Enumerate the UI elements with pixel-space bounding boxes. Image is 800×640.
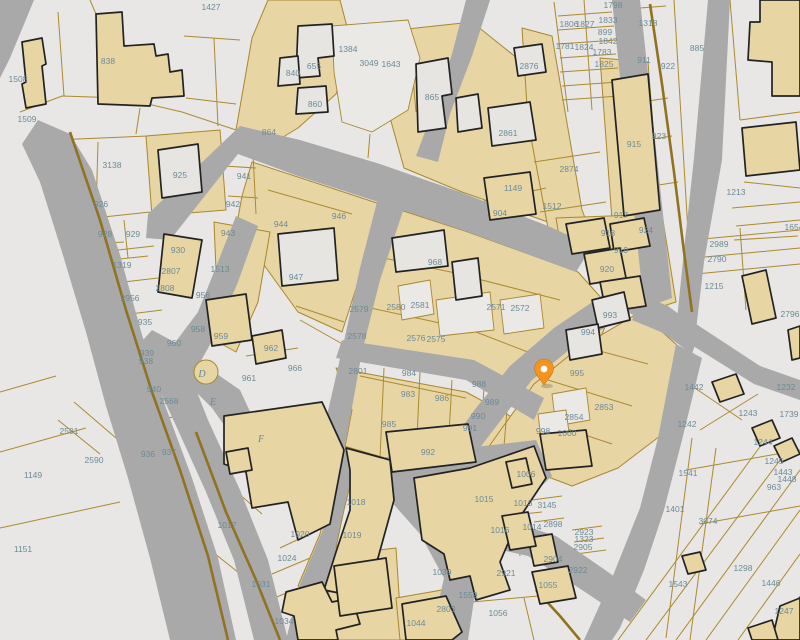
parcel-label: 963: [767, 482, 781, 492]
parcel-label: 2578: [348, 331, 367, 341]
parcel-label: 1827: [576, 19, 595, 29]
parcel-label: 937: [162, 447, 176, 457]
parcel-label: 966: [288, 363, 302, 373]
parcel-label: 956: [196, 290, 210, 300]
parcel-label: 1243: [739, 408, 758, 418]
parcel-label: 2807: [162, 266, 181, 276]
parcel-label: 1298: [734, 563, 753, 573]
parcel-label: 865: [425, 92, 439, 102]
parcel-label: 2854: [565, 412, 584, 422]
parcel-label: 925: [173, 170, 187, 180]
parcel-label: 918: [601, 228, 615, 238]
parcel-label: 962: [264, 343, 278, 353]
parcel-label: 1427: [202, 2, 221, 12]
building: [456, 94, 482, 132]
parcel-label: 2989: [710, 239, 729, 249]
parcel-label: 1446: [762, 578, 781, 588]
parcel-label: 1244: [754, 437, 773, 447]
parcel-label: 1039: [433, 567, 452, 577]
parcel-label: 2921: [497, 568, 516, 578]
parcel-label: 2898: [544, 519, 563, 529]
parcel-label: 1245: [765, 456, 784, 466]
parcel-label: 1509: [18, 114, 37, 124]
parcel-label: 944: [274, 219, 288, 229]
parcel-label: 1513: [211, 264, 230, 274]
parcel-label: 960: [167, 338, 181, 348]
parcel-label: 2808: [156, 283, 175, 293]
parcel-label: 998: [536, 426, 550, 436]
parcel-label: 1014: [523, 522, 542, 532]
parcel-label: 911: [637, 55, 651, 65]
parcel-label: 2861: [499, 128, 518, 138]
parcel-label: 1031: [252, 579, 271, 589]
parcel-label: 946: [332, 211, 346, 221]
parcel-label: 2803: [437, 604, 456, 614]
building: [742, 122, 800, 176]
parcel-label: 959: [214, 331, 228, 341]
parcel-label: 3074: [699, 516, 718, 526]
parcel-label: 2874: [560, 164, 579, 174]
parcel-label: 993: [603, 310, 617, 320]
parcel-label: 2790: [708, 254, 727, 264]
parcel-label: 1559: [459, 590, 478, 600]
parcel-label: 986: [435, 393, 449, 403]
parcel-label: 1232: [777, 382, 796, 392]
parcel-label: 936: [141, 449, 155, 459]
parcel-label: 2571: [487, 302, 506, 312]
parcel-label: 1643: [382, 59, 401, 69]
parcel-label: 920: [600, 264, 614, 274]
parcel-label: 2905: [574, 542, 593, 552]
parcel-label: 1543: [669, 579, 688, 589]
parcel-label: 840: [286, 68, 300, 78]
parcel-label: 1654: [785, 222, 800, 232]
parcel-label: 926: [94, 199, 108, 209]
parcel-label: 2580: [387, 302, 406, 312]
building: [278, 228, 338, 286]
building: [452, 258, 482, 300]
parcel-label: 655: [307, 61, 321, 71]
parcel-label: 3138: [103, 160, 122, 170]
parcel-label: 1151: [14, 544, 33, 554]
parcel-label: 919: [614, 245, 628, 255]
building: [22, 38, 46, 108]
parcel-label: 2576: [407, 333, 426, 343]
parcel-label: 1798: [604, 0, 623, 10]
parcel-label: 1833: [599, 15, 618, 25]
building: [334, 558, 392, 616]
parcel-label: 1055: [539, 580, 558, 590]
parcel-label: 929: [126, 229, 140, 239]
building: [206, 294, 252, 346]
parcel-label: 1016: [491, 525, 510, 535]
building: [484, 172, 536, 220]
parcel-label: 1149: [24, 470, 43, 480]
parcel-label: 2575: [427, 334, 446, 344]
parcel-label: 838: [101, 56, 115, 66]
parcel-label: 1034: [275, 616, 294, 626]
parcel-label: 1017: [218, 520, 237, 530]
parcel-label: 985: [382, 419, 396, 429]
parcel-label: 1006: [517, 469, 536, 479]
parcel-label: 1247: [775, 606, 794, 616]
parcel-label: 924: [639, 225, 653, 235]
parcel-label: 2922: [569, 565, 588, 575]
parcel-label: 2876: [520, 61, 539, 71]
parcel-label: 994: [581, 327, 595, 337]
parcel-label: 1442: [685, 382, 704, 392]
parcel-label: 1824: [575, 42, 594, 52]
parcel-label: 1149: [504, 183, 523, 193]
parcel-label: 885: [690, 43, 704, 53]
building: [514, 44, 546, 76]
parcel-label: 923: [652, 131, 666, 141]
parcel-label: 1215: [705, 281, 724, 291]
parcel-label: 992: [421, 447, 435, 457]
parcel-label: 1242: [678, 419, 697, 429]
parcel-label: 1020: [291, 529, 310, 539]
parcel-label: 942: [226, 199, 240, 209]
parcel-label: 1056: [489, 608, 508, 618]
parcel-label: 968: [428, 257, 442, 267]
parcel-label: 1044: [407, 618, 426, 628]
parcel-label: 1213: [727, 187, 746, 197]
parcel-label: 984: [402, 368, 416, 378]
parcel-label: 940: [147, 384, 161, 394]
parcel-label: 1015: [475, 494, 494, 504]
parcel-label: 2796: [781, 309, 800, 319]
parcel-label: 1384: [339, 44, 358, 54]
parcel-label: 989: [485, 397, 499, 407]
parcel-label: 1508: [9, 74, 28, 84]
parcel-label: 983: [401, 389, 415, 399]
parcel-label: 938: [139, 356, 153, 366]
parcel-label: 864: [262, 127, 276, 137]
parcel-label: 1318: [639, 18, 658, 28]
map-canvas[interactable]: 1427150815098383138926925941942928929131…: [0, 0, 800, 640]
parcel-label: 904: [493, 208, 507, 218]
parcel-label: 943: [221, 228, 235, 238]
parcel-label: 2956: [121, 293, 140, 303]
parcel-label: 2568: [160, 396, 179, 406]
parcel-label: 1842: [599, 36, 618, 46]
parcel-label: 928: [98, 229, 112, 239]
block-letter-label: E: [209, 397, 216, 408]
parcel-label: 2801: [349, 366, 368, 376]
parcel-label: 2904: [544, 554, 563, 564]
parcel-label: 990: [471, 411, 485, 421]
parcel-label: 1783: [593, 47, 612, 57]
parcel-label: 961: [242, 373, 256, 383]
parcel-label: 1781: [556, 41, 575, 51]
block-letter-label: D: [197, 369, 206, 380]
parcel-label: 917: [614, 210, 628, 220]
parcel-label: 988: [472, 379, 486, 389]
parcel-label: 1541: [679, 468, 698, 478]
parcel-label: 1019: [343, 530, 362, 540]
parcel-label: 2581: [411, 300, 430, 310]
parcel-label: 947: [289, 272, 303, 282]
parcel-label: 1512: [543, 201, 562, 211]
parcel-label: 3049: [360, 58, 379, 68]
parcel-label: 935: [138, 317, 152, 327]
parcel-label: 3145: [538, 500, 557, 510]
building: [488, 102, 536, 146]
parcel-label: 1401: [666, 504, 685, 514]
parcel-label: 1825: [595, 59, 614, 69]
parcel-patch: [500, 294, 544, 334]
parcel-label: 860: [308, 99, 322, 109]
parcel-label: 1739: [780, 409, 799, 419]
parcel-label: 991: [463, 423, 477, 433]
parcel-label: 1319: [113, 260, 132, 270]
parcel-label: 1018: [347, 497, 366, 507]
parcel-label: 915: [627, 139, 641, 149]
parcel-label: 958: [191, 324, 205, 334]
building: [226, 448, 252, 474]
parcel-label: 2591: [60, 426, 79, 436]
parcel-label: 941: [237, 171, 251, 181]
parcel-label: 995: [570, 368, 584, 378]
parcel-label: 2853: [595, 402, 614, 412]
parcel-label: 2579: [350, 304, 369, 314]
parcel-label: 1000: [558, 428, 577, 438]
parcel-label: 1024: [278, 553, 297, 563]
map-viewport[interactable]: 1427150815098383138926925941942928929131…: [0, 0, 800, 640]
parcel-label: 1013: [514, 498, 533, 508]
parcel-label: 922: [661, 61, 675, 71]
parcel-label: 930: [171, 245, 185, 255]
block-letter-label: F: [257, 434, 265, 445]
parcel-label: 2590: [85, 455, 104, 465]
parcel-label: 2572: [511, 303, 530, 313]
